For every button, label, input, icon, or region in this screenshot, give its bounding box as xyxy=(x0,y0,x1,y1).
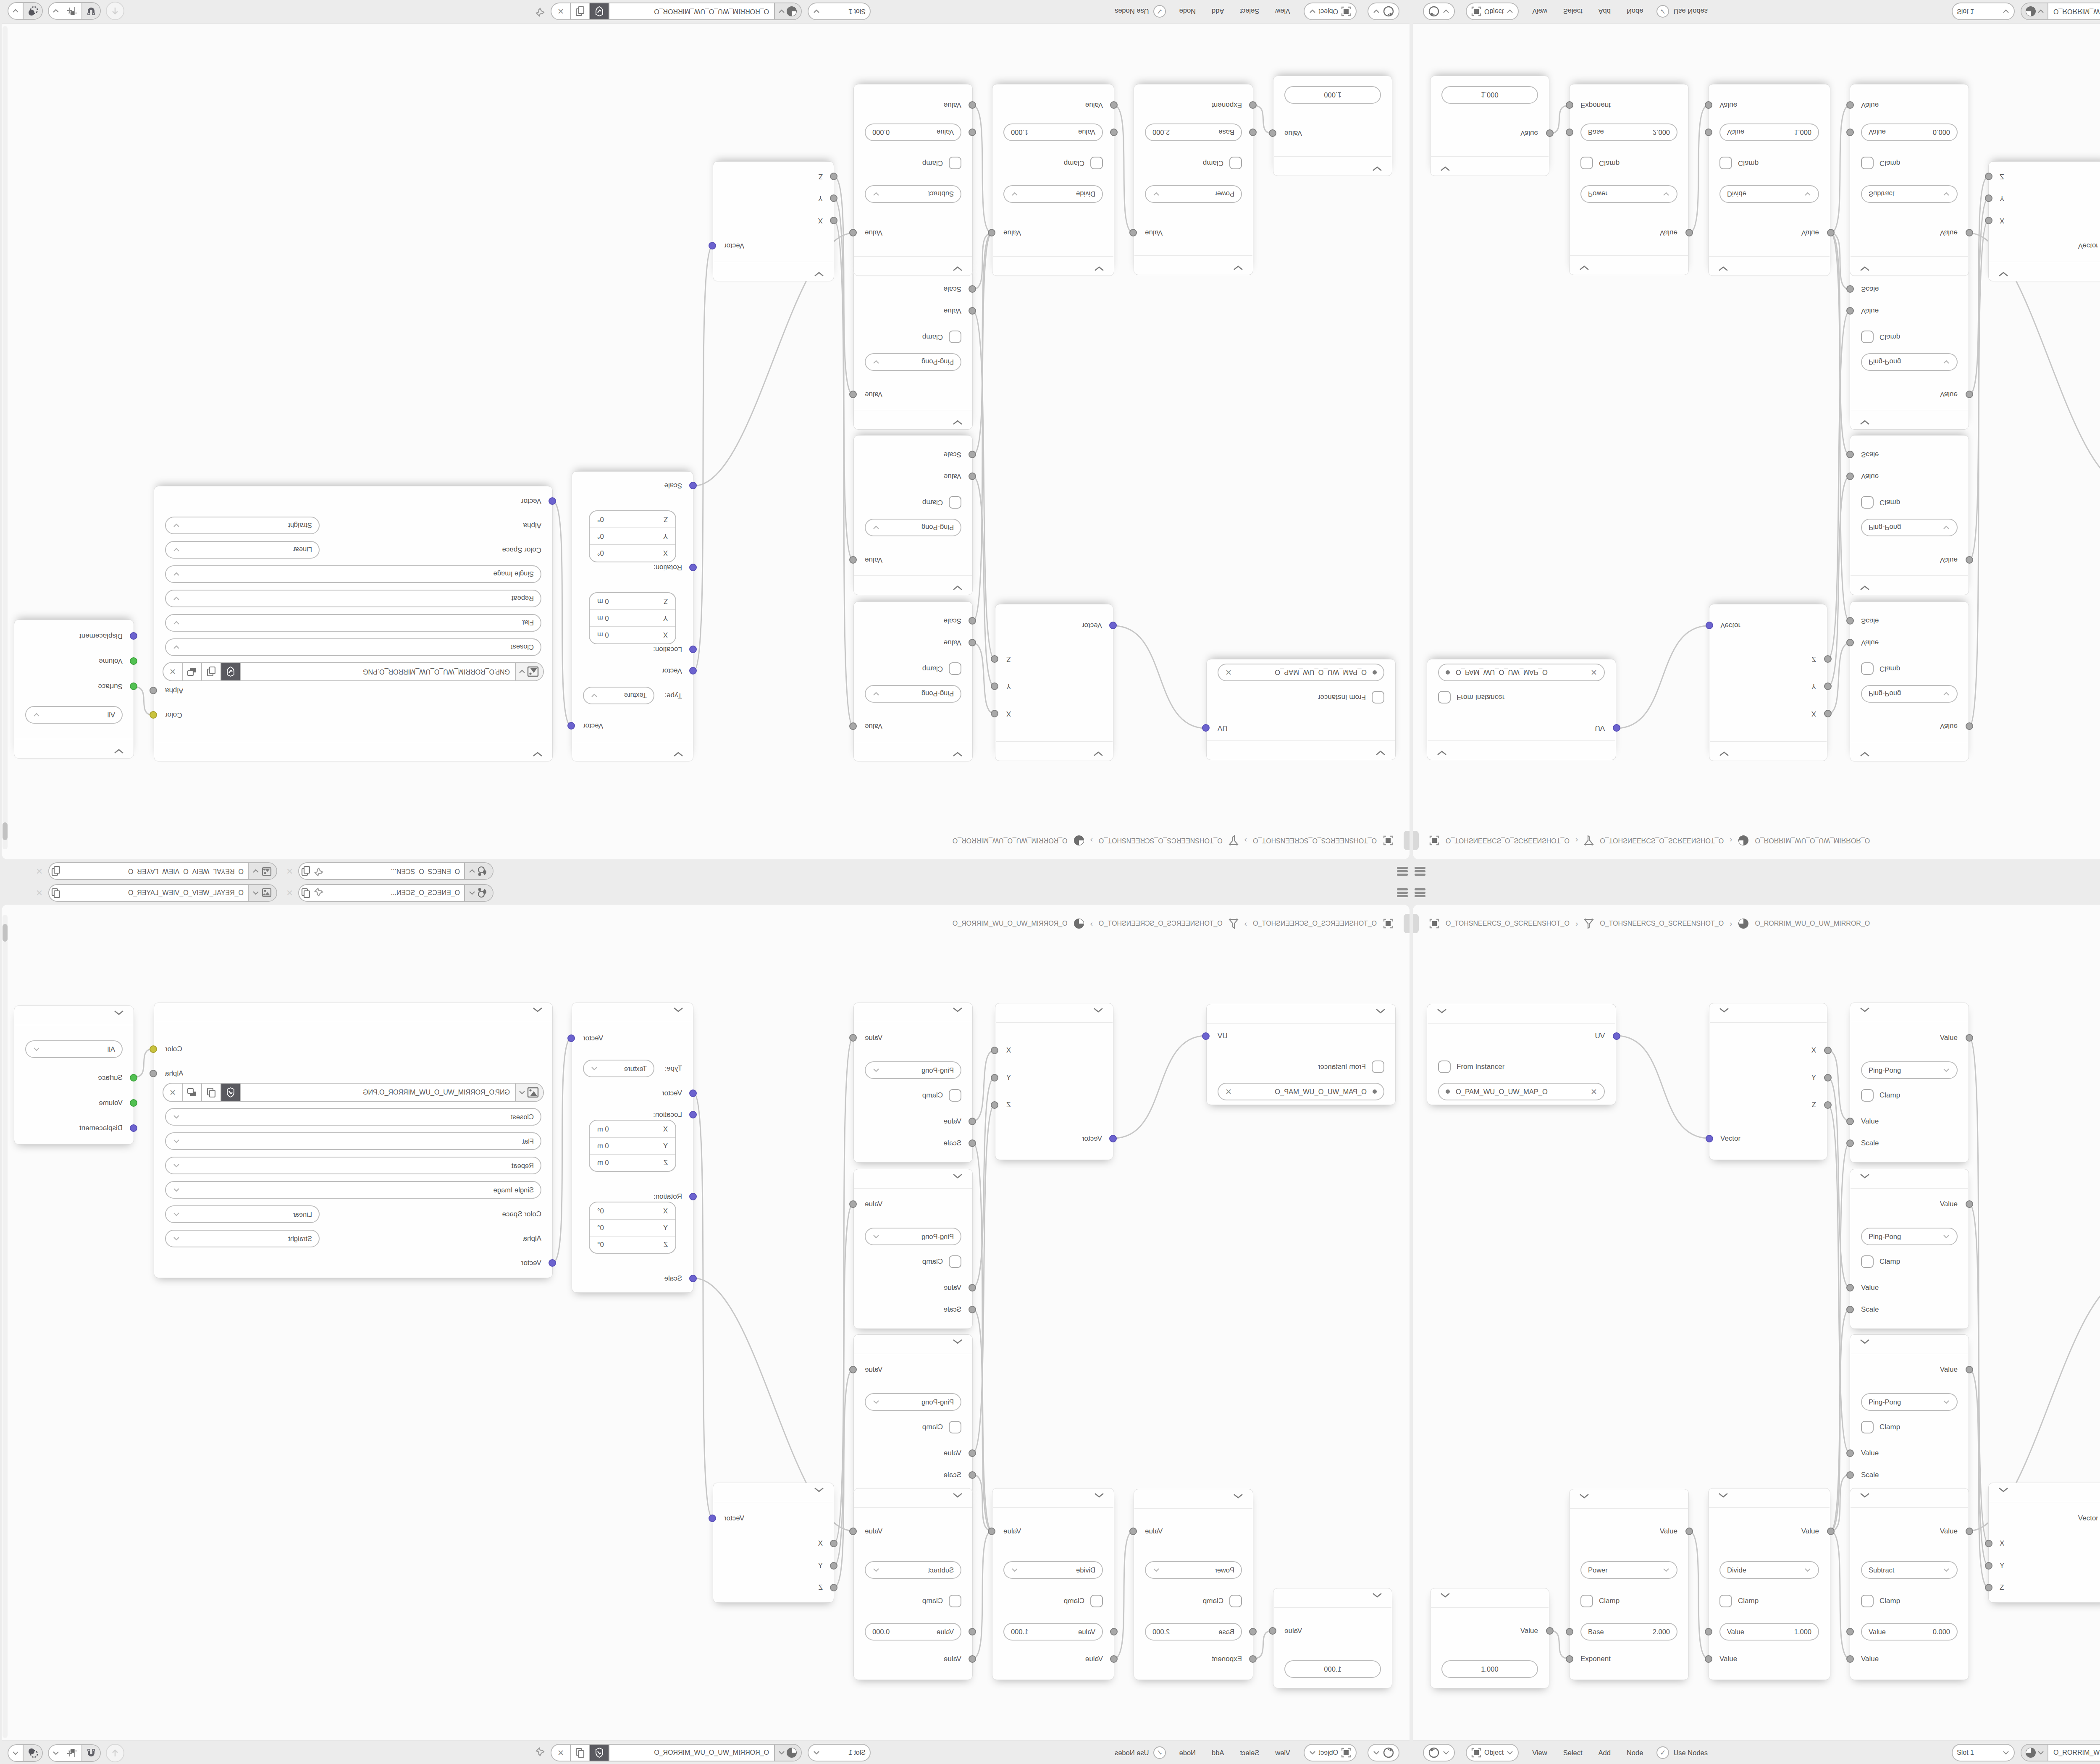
dropdown-select[interactable]: Subtract xyxy=(1861,1561,1958,1579)
number-field[interactable]: Value0.000 xyxy=(1861,123,1958,141)
socket-out-value[interactable] xyxy=(1685,229,1693,236)
socket-out-uv[interactable] xyxy=(1202,724,1210,732)
collapse-chevron-icon[interactable] xyxy=(532,1007,543,1013)
new-copy-button[interactable] xyxy=(202,663,221,680)
dropdown-select[interactable]: Subtract xyxy=(865,185,961,203)
node-math-ping-pong-2[interactable]: ValuePing-PongClampValueScale xyxy=(1850,435,1969,595)
socket-in-z[interactable] xyxy=(830,173,837,180)
collapse-chevron-icon[interactable] xyxy=(532,751,543,757)
socket-out-alpha[interactable] xyxy=(150,1070,157,1077)
close-icon[interactable]: ✕ xyxy=(557,1748,564,1758)
number-field[interactable]: Base2.000 xyxy=(1580,1623,1677,1641)
socket-in-exponent[interactable] xyxy=(1249,1655,1257,1663)
editor-type-button[interactable] xyxy=(1423,3,1455,20)
image-icon-button[interactable] xyxy=(515,663,543,680)
node-math-ping-pong-3[interactable]: ValuePing-PongClampValueScale xyxy=(1850,270,1969,430)
dropdown-select[interactable]: Ping-Pong xyxy=(865,685,961,703)
socket-out-value[interactable] xyxy=(1966,1528,1973,1535)
socket-out-value[interactable] xyxy=(849,229,857,236)
collapse-chevron-icon[interactable] xyxy=(113,748,124,754)
socket-field-value[interactable] xyxy=(1846,1628,1854,1635)
number-field[interactable]: 1.000 xyxy=(1284,86,1381,104)
dropdown-select[interactable]: All xyxy=(25,1040,123,1058)
collapse-chevron-icon[interactable] xyxy=(1233,1493,1244,1499)
scene-selector[interactable]: O_ENECS_O_SCEN... xyxy=(298,884,493,902)
collapse-chevron-icon[interactable] xyxy=(1998,1487,2009,1493)
dropdown-select[interactable]: Ping-Pong xyxy=(865,1393,961,1411)
socket-out-y[interactable] xyxy=(1824,682,1832,690)
socket-field-base[interactable] xyxy=(1249,1628,1257,1635)
socket-in-scale[interactable] xyxy=(969,617,976,625)
number-field[interactable]: Base2.000 xyxy=(1145,123,1242,141)
checkbox[interactable] xyxy=(949,1595,961,1607)
collapse-chevron-icon[interactable] xyxy=(1859,1492,1870,1498)
arrow-up-button[interactable] xyxy=(106,2,124,20)
breadcrumb-object[interactable]: O_TOHSNEERCS_O_SCREENSHOT_O xyxy=(1099,920,1223,927)
socket-in-vector[interactable] xyxy=(1109,622,1117,629)
socket-in-x[interactable] xyxy=(830,1540,837,1547)
shader-mode-select[interactable]: Object xyxy=(1466,1744,1519,1761)
collapse-chevron-icon[interactable] xyxy=(673,751,684,757)
node-math-ping-pong-1[interactable]: ValuePing-PongClampValueScale xyxy=(1850,1003,1969,1163)
use-nodes-checkbox[interactable]: ✓Use Nodes xyxy=(1656,1746,1708,1759)
dropdown-select[interactable]: Ping-Pong xyxy=(865,1061,961,1079)
dropdown-select[interactable]: Closest xyxy=(165,638,541,656)
view-layer-selector[interactable]: O_REYAL_WEIV_O_VIEW_LAYER_O xyxy=(48,862,277,880)
material-slot-select[interactable]: Slot 1 xyxy=(808,3,871,20)
checkbox[interactable] xyxy=(1719,1595,1732,1607)
socket-out-value[interactable] xyxy=(1966,391,1973,398)
pack-button[interactable] xyxy=(183,663,202,680)
socket-in-y[interactable] xyxy=(830,1562,837,1570)
menu-add[interactable]: Add xyxy=(1596,1749,1613,1757)
pin-icon[interactable] xyxy=(312,863,325,879)
use-nodes-checkbox[interactable]: ✓Use Nodes xyxy=(1656,5,1708,18)
socket-field-value[interactable] xyxy=(1705,129,1712,136)
vector-component-field[interactable]: X0 m xyxy=(590,1121,675,1137)
socket-in-value[interactable] xyxy=(1846,1449,1854,1457)
socket-field-value[interactable] xyxy=(1110,1628,1118,1635)
socket-out-value[interactable] xyxy=(1966,1366,1973,1373)
socket-in-value[interactable] xyxy=(1846,101,1854,109)
dropdown-select[interactable]: Power xyxy=(1145,185,1242,203)
socket-in-value[interactable] xyxy=(1110,101,1118,109)
checkbox[interactable] xyxy=(1438,691,1451,703)
node-math-ping-pong-1[interactable]: ValuePing-PongClampValueScale xyxy=(853,601,973,761)
hamburger-icon[interactable] xyxy=(1397,887,1408,898)
socket-in-value[interactable] xyxy=(1705,1655,1712,1663)
editor-type-button[interactable] xyxy=(1368,3,1399,20)
checkbox[interactable] xyxy=(1229,157,1242,169)
collapse-chevron-icon[interactable] xyxy=(1859,1339,1870,1344)
editor-type-button[interactable] xyxy=(1368,1744,1399,1761)
socket-out-value[interactable] xyxy=(849,391,857,398)
checkbox[interactable] xyxy=(1861,662,1874,675)
dropdown-select[interactable]: Flat xyxy=(165,1132,541,1150)
node-value[interactable]: Value1.000 xyxy=(1273,76,1392,176)
vector-component-field[interactable]: Y0° xyxy=(590,1219,675,1236)
dropdown-select[interactable]: Repeat xyxy=(165,590,541,607)
socket-in-y[interactable] xyxy=(1985,194,1992,202)
collapse-chevron-icon[interactable] xyxy=(952,585,963,591)
dropdown-select[interactable]: Ping-Pong xyxy=(865,519,961,536)
checkbox[interactable] xyxy=(949,1421,961,1433)
collapse-chevron-icon[interactable] xyxy=(113,1010,124,1016)
dropdown-select[interactable]: Linear xyxy=(165,1205,320,1223)
dropdown-select[interactable]: Ping-Pong xyxy=(865,353,961,371)
node-math-ping-pong-2[interactable]: ValuePing-PongClampValueScale xyxy=(1850,1169,1969,1329)
material-slot-select[interactable]: Slot 1 xyxy=(1952,1744,2015,1761)
socket-in-y[interactable] xyxy=(1985,1562,1992,1570)
dropdown-select[interactable]: Texture xyxy=(583,1060,654,1077)
socket-in-vector[interactable] xyxy=(689,667,697,675)
menu-add[interactable]: Add xyxy=(1209,1749,1226,1757)
dropdown-select[interactable]: Ping-Pong xyxy=(1861,1228,1958,1245)
node-math-divide[interactable]: ValueDivideClampValue1.000Value xyxy=(992,1488,1114,1680)
shield-icon[interactable] xyxy=(595,6,604,17)
number-field[interactable]: Base2.000 xyxy=(1580,123,1677,141)
vector-component-field[interactable]: Y0 m xyxy=(590,610,675,627)
checkbox[interactable] xyxy=(1861,157,1874,169)
uv-map-selector[interactable]: O_PAM_WU_O_UW_MAP_O✕ xyxy=(1218,664,1384,681)
socket-field-value[interactable] xyxy=(969,129,976,136)
dropdown-select[interactable]: Subtract xyxy=(865,1561,961,1579)
socket-in-location:[interactable] xyxy=(689,1111,697,1118)
scene-name[interactable]: O_ENECS_O_SCEN... xyxy=(325,885,464,901)
collapse-chevron-icon[interactable] xyxy=(952,1173,963,1179)
breadcrumb-material[interactable]: O_RORRIM_WU_O_UW_MIRROR_O xyxy=(1755,837,1870,844)
node-output-aov[interactable]: AllSurfaceVolumeDisplacement xyxy=(14,1005,134,1144)
node-uv-map[interactable]: UVFrom InstancerO_PAM_WU_O_UW_MAP_O✕ xyxy=(1206,1004,1396,1105)
socket-out-value[interactable] xyxy=(1546,1627,1554,1635)
proximity-editing-control[interactable] xyxy=(8,2,43,20)
collapse-chevron-icon[interactable] xyxy=(1436,750,1447,756)
material-name[interactable]: O_RORRIM_WU_O_UW_MIRROR_O xyxy=(2048,3,2100,19)
socket-out-value[interactable] xyxy=(849,1034,857,1042)
socket-field-value[interactable] xyxy=(1846,129,1854,136)
socket-in-value[interactable] xyxy=(1846,639,1854,646)
collapse-chevron-icon[interactable] xyxy=(814,271,824,277)
node-separate-xyz[interactable]: XYZVector xyxy=(995,1003,1113,1160)
node-value[interactable]: Value1.000 xyxy=(1273,1588,1392,1688)
scrollbar-thumb[interactable] xyxy=(3,822,8,840)
socket-in-scale[interactable] xyxy=(1846,1471,1854,1479)
socket-out-value[interactable] xyxy=(849,1200,857,1208)
snapping-control[interactable] xyxy=(48,2,101,20)
socket-out-value[interactable] xyxy=(1685,1528,1693,1535)
material-slot-select[interactable]: Slot 1 xyxy=(1952,3,2015,20)
node-editor-area[interactable]: UVFrom InstancerO_PAM_WU_O_UW_MAP_O✕XYZV… xyxy=(2,905,1410,1764)
menu-select[interactable]: Select xyxy=(1237,1749,1262,1757)
dropdown-select[interactable]: Divide xyxy=(1003,1561,1103,1579)
socket-out-value[interactable] xyxy=(1966,1034,1973,1042)
node-value[interactable]: Value1.000 xyxy=(1430,1588,1549,1688)
vertical-scrollbar[interactable] xyxy=(3,26,8,849)
dropdown-select[interactable]: Ping-Pong xyxy=(865,1228,961,1245)
menu-view[interactable]: View xyxy=(1530,8,1549,16)
collapse-chevron-icon[interactable] xyxy=(952,751,963,757)
image-datablock-selector[interactable]: GNP.O_RORRIM_WU_O_UW_MIRROR_O.PNG✕ xyxy=(163,662,544,681)
collapse-chevron-icon[interactable] xyxy=(1718,266,1729,272)
socket-out-uv[interactable] xyxy=(1613,1032,1620,1040)
collapse-chevron-icon[interactable] xyxy=(1093,1007,1104,1013)
dropdown-select[interactable]: Straight xyxy=(165,517,320,534)
shield-icon[interactable] xyxy=(595,1747,604,1758)
checkbox[interactable] xyxy=(1861,331,1874,343)
menu-node[interactable]: Node xyxy=(1177,1749,1198,1757)
socket-in-scale[interactable] xyxy=(969,285,976,293)
socket-in-value[interactable] xyxy=(969,1118,976,1125)
socket-out-x[interactable] xyxy=(991,710,998,717)
collapse-chevron-icon[interactable] xyxy=(1859,1007,1870,1013)
socket-in-value[interactable] xyxy=(1846,307,1854,315)
scene-selector[interactable]: O_ENECS_O_SCEN... xyxy=(298,862,493,880)
image-datablock-selector[interactable]: GNP.O_RORRIM_WU_O_UW_MIRROR_O.PNG✕ xyxy=(163,1083,544,1102)
node-separate-xyz[interactable]: XYZVector xyxy=(1709,604,1827,761)
dropdown-select[interactable]: All xyxy=(25,706,123,724)
collapse-chevron-icon[interactable] xyxy=(952,420,963,425)
vector-field-group[interactable]: X0 mY0 mZ0 m xyxy=(589,592,676,644)
collapse-chevron-icon[interactable] xyxy=(952,1339,963,1344)
shader-mode-select[interactable]: Object xyxy=(1466,3,1519,20)
snapping-control[interactable] xyxy=(48,1744,101,1762)
scene-name[interactable]: O_ENECS_O_SCEN... xyxy=(325,863,464,879)
checkbox[interactable] xyxy=(949,662,961,675)
socket-out-value[interactable] xyxy=(988,229,995,236)
material-selector[interactable]: O_RORRIM_WU_O_UW_MIRROR_O ✕ xyxy=(551,1744,802,1761)
socket-out-vector[interactable] xyxy=(567,722,575,730)
collapse-chevron-icon[interactable] xyxy=(1094,1492,1105,1498)
dropdown-select[interactable]: Ping-Pong xyxy=(1861,1061,1958,1079)
number-field[interactable]: Value1.000 xyxy=(1003,123,1103,141)
socket-in-value[interactable] xyxy=(1846,1284,1854,1291)
socket-field-value[interactable] xyxy=(1110,129,1118,136)
new-copy-button[interactable] xyxy=(202,1084,221,1101)
dropdown-select[interactable]: Repeat xyxy=(165,1157,541,1174)
collapse-chevron-icon[interactable] xyxy=(1375,1008,1386,1014)
material-name[interactable]: O_RORRIM_WU_O_UW_MIRROR_O xyxy=(609,1745,774,1761)
checkbox[interactable] xyxy=(1580,1595,1593,1607)
menu-view[interactable]: View xyxy=(1273,8,1292,16)
vector-field-group[interactable]: X0 mY0 mZ0 m xyxy=(589,1120,676,1172)
node-math-subtract[interactable]: ValueSubtractClampValue0.000Value xyxy=(1850,84,1969,276)
menu-add[interactable]: Add xyxy=(1596,8,1613,16)
socket-in-value[interactable] xyxy=(969,1655,976,1663)
image-name[interactable]: GNP.O_RORRIM_WU_O_UW_MIRROR_O.PNG xyxy=(241,1084,515,1101)
node-math-ping-pong-3[interactable]: ValuePing-PongClampValueScale xyxy=(1850,1334,1969,1494)
socket-in-exponent[interactable] xyxy=(1249,101,1257,109)
menu-node[interactable]: Node xyxy=(1624,8,1646,16)
collapse-chevron-icon[interactable] xyxy=(1375,750,1386,756)
checkbox[interactable] xyxy=(1229,1595,1242,1607)
collapse-chevron-icon[interactable] xyxy=(1094,266,1105,272)
socket-in-volume[interactable] xyxy=(130,657,137,665)
socket-out-uv[interactable] xyxy=(1613,724,1620,732)
breadcrumb-material[interactable]: O_RORRIM_WU_O_UW_MIRROR_O xyxy=(953,920,1068,927)
collapse-chevron-icon[interactable] xyxy=(952,1007,963,1013)
socket-out-x[interactable] xyxy=(991,1047,998,1054)
node-editor-area[interactable]: UVFrom InstancerO_PAM_WU_O_UW_MAP_O✕XYZV… xyxy=(2,0,1410,859)
socket-in-scale[interactable] xyxy=(1846,1306,1854,1313)
socket-out-z[interactable] xyxy=(1824,655,1832,663)
shader-mode-select[interactable]: Object xyxy=(1304,3,1357,20)
dropdown-select[interactable]: Ping-Pong xyxy=(1861,353,1958,371)
checkbox[interactable] xyxy=(1090,1595,1103,1607)
number-field[interactable]: Base2.000 xyxy=(1145,1623,1242,1641)
socket-out-value[interactable] xyxy=(1966,722,1973,730)
material-selector[interactable]: O_RORRIM_WU_O_UW_MIRROR_O ✕ xyxy=(2021,1744,2100,1761)
socket-in-exponent[interactable] xyxy=(1566,101,1573,109)
vector-component-field[interactable]: X0 m xyxy=(590,627,675,643)
socket-in-scale[interactable] xyxy=(1846,285,1854,293)
hamburger-icon[interactable] xyxy=(1415,866,1425,877)
dropdown-select[interactable]: Divide xyxy=(1719,185,1819,203)
node-separate-xyz[interactable]: XYZVector xyxy=(995,604,1113,761)
vector-component-field[interactable]: X0° xyxy=(590,545,675,562)
socket-out-value[interactable] xyxy=(1129,229,1137,236)
close-button[interactable]: ✕ xyxy=(163,663,183,680)
view-layer-name[interactable]: O_REYAL_WEIV_O_VIEW_LAYER_O xyxy=(63,885,248,901)
checkbox[interactable] xyxy=(949,157,961,169)
socket-out-z[interactable] xyxy=(991,655,998,663)
uv-map-selector[interactable]: O_PAM_WU_O_UW_MAP_O✕ xyxy=(1438,664,1605,681)
node-math-ping-pong-3[interactable]: ValuePing-PongClampValueScale xyxy=(853,270,973,430)
socket-out-z[interactable] xyxy=(1824,1101,1832,1109)
dropdown-select[interactable]: Straight xyxy=(165,1230,320,1247)
menu-select[interactable]: Select xyxy=(1561,1749,1585,1757)
breadcrumb-object[interactable]: O_TOHSNEERCS_O_SCREENSHOT_O xyxy=(1600,837,1724,844)
socket-in-scale[interactable] xyxy=(969,1471,976,1479)
vector-component-field[interactable]: Z0° xyxy=(590,1236,675,1253)
checkbox[interactable] xyxy=(949,1089,961,1102)
uv-map-selector[interactable]: O_PAM_WU_O_UW_MAP_O✕ xyxy=(1218,1083,1384,1100)
node-editor-area[interactable]: UVFrom InstancerO_PAM_WU_O_UW_MAP_O✕XYZV… xyxy=(1413,905,2100,1764)
socket-in-x[interactable] xyxy=(1985,217,1992,224)
socket-out-z[interactable] xyxy=(991,1101,998,1109)
sidebar-handle[interactable] xyxy=(1404,914,1410,933)
socket-out-value[interactable] xyxy=(1966,229,1973,236)
node-combine-xyz[interactable]: VectorXYZ xyxy=(1988,161,2100,281)
node-math-power[interactable]: ValuePowerClampBase2.000Exponent xyxy=(1569,84,1689,275)
socket-out-y[interactable] xyxy=(1824,1074,1832,1081)
number-field[interactable]: Value1.000 xyxy=(1719,123,1819,141)
number-field[interactable]: Value1.000 xyxy=(1719,1623,1819,1641)
view-layer-selector[interactable]: O_REYAL_WEIV_O_VIEW_LAYER_O xyxy=(48,884,277,902)
node-mapping[interactable]: VectorType:TextureVectorLocation:X0 mY0 … xyxy=(572,1003,693,1293)
socket-out-x[interactable] xyxy=(1824,710,1832,717)
socket-in-surface[interactable] xyxy=(130,1074,137,1081)
collapse-chevron-icon[interactable] xyxy=(1719,1007,1730,1013)
dropdown-select[interactable]: Ping-Pong xyxy=(1861,685,1958,703)
collapse-chevron-icon[interactable] xyxy=(952,1492,963,1498)
socket-in-vector[interactable] xyxy=(1109,1135,1117,1142)
checkbox[interactable] xyxy=(1372,691,1384,703)
socket-out-alpha[interactable] xyxy=(150,687,157,694)
node-math-divide[interactable]: ValueDivideClampValue1.000Value xyxy=(1708,84,1830,276)
material-name[interactable]: O_RORRIM_WU_O_UW_MIRROR_O xyxy=(609,3,774,19)
menu-select[interactable]: Select xyxy=(1237,8,1262,16)
socket-in-scale[interactable] xyxy=(1846,617,1854,625)
node-combine-xyz[interactable]: VectorXYZ xyxy=(713,161,834,281)
node-math-divide[interactable]: ValueDivideClampValue1.000Value xyxy=(1708,1488,1830,1680)
socket-in-scale[interactable] xyxy=(689,482,697,489)
socket-in-value[interactable] xyxy=(969,472,976,480)
checkbox[interactable] xyxy=(1861,1595,1874,1607)
socket-out-vector[interactable] xyxy=(567,1034,575,1042)
collapse-chevron-icon[interactable] xyxy=(1372,1592,1383,1598)
pin-icon[interactable] xyxy=(535,1747,545,1758)
image-icon-button[interactable] xyxy=(515,1084,543,1101)
dropdown-select[interactable]: Power xyxy=(1145,1561,1242,1579)
socket-in-z[interactable] xyxy=(1985,1584,1992,1591)
vector-component-field[interactable]: X0° xyxy=(590,1202,675,1219)
breadcrumb-scene[interactable]: O_TOHSNEERCS_O_SCREENSHOT_O xyxy=(1253,920,1377,927)
dropdown-select[interactable]: Closest xyxy=(165,1108,541,1126)
socket-in-volume[interactable] xyxy=(130,1099,137,1107)
socket-out-vector[interactable] xyxy=(709,242,716,249)
socket-in-location:[interactable] xyxy=(689,646,697,653)
socket-in-value[interactable] xyxy=(969,1449,976,1457)
collapse-chevron-icon[interactable] xyxy=(1859,751,1870,757)
socket-in-vector[interactable] xyxy=(549,497,556,505)
collapse-chevron-icon[interactable] xyxy=(1579,265,1590,271)
node-math-subtract[interactable]: ValueSubtractClampValue0.000Value xyxy=(853,1488,973,1680)
socket-out-color[interactable] xyxy=(150,1045,157,1053)
dropdown-select[interactable]: Power xyxy=(1580,185,1677,203)
socket-in-x[interactable] xyxy=(1985,1540,1992,1547)
pin-icon[interactable] xyxy=(535,6,545,17)
pack-button[interactable] xyxy=(183,1084,202,1101)
node-image-texture[interactable]: ColorAlphaGNP.O_RORRIM_WU_O_UW_MIRROR_O.… xyxy=(154,486,553,761)
checkbox[interactable] xyxy=(1438,1060,1451,1073)
socket-in-vector[interactable] xyxy=(689,1089,697,1097)
vector-component-field[interactable]: Y0° xyxy=(590,528,675,545)
node-combine-xyz[interactable]: VectorXYZ xyxy=(713,1483,834,1603)
node-mapping[interactable]: VectorType:TextureVectorLocation:X0 mY0 … xyxy=(572,471,693,761)
shield-button[interactable] xyxy=(221,663,241,680)
arrow-up-button[interactable] xyxy=(106,1744,124,1762)
socket-in-y[interactable] xyxy=(830,194,837,202)
socket-in-rotation:[interactable] xyxy=(689,564,697,571)
socket-in-vector[interactable] xyxy=(549,1259,556,1267)
socket-in-value[interactable] xyxy=(969,101,976,109)
scrollbar-thumb[interactable] xyxy=(3,924,8,942)
collapse-chevron-icon[interactable] xyxy=(1859,420,1870,425)
socket-out-value[interactable] xyxy=(1966,556,1973,564)
sidebar-handle[interactable] xyxy=(1413,831,1419,850)
node-math-power[interactable]: ValuePowerClampBase2.000Exponent xyxy=(1134,84,1253,275)
checkbox[interactable] xyxy=(1861,496,1874,509)
vector-component-field[interactable]: Y0 m xyxy=(590,1137,675,1154)
checkbox[interactable] xyxy=(1861,1421,1874,1433)
node-math-ping-pong-1[interactable]: ValuePing-PongClampValueScale xyxy=(853,1003,973,1163)
socket-in-value[interactable] xyxy=(1110,1655,1118,1663)
checkbox[interactable] xyxy=(949,331,961,343)
node-math-power[interactable]: ValuePowerClampBase2.000Exponent xyxy=(1569,1489,1689,1680)
dropdown-select[interactable]: Single Image xyxy=(165,565,541,583)
collapse-chevron-icon[interactable] xyxy=(1372,166,1383,172)
socket-out-value[interactable] xyxy=(849,1366,857,1373)
socket-in-value[interactable] xyxy=(1846,1118,1854,1125)
vector-component-field[interactable]: Z0 m xyxy=(590,1154,675,1171)
socket-out-y[interactable] xyxy=(991,1074,998,1081)
socket-in-exponent[interactable] xyxy=(1566,1655,1573,1663)
menu-view[interactable]: View xyxy=(1530,1749,1549,1757)
uv-map-selector[interactable]: O_PAM_WU_O_UW_MAP_O✕ xyxy=(1438,1083,1605,1100)
node-uv-map[interactable]: UVFrom InstancerO_PAM_WU_O_UW_MAP_O✕ xyxy=(1427,1004,1616,1105)
socket-in-vector[interactable] xyxy=(1706,1135,1713,1142)
collapse-chevron-icon[interactable] xyxy=(1093,751,1104,757)
